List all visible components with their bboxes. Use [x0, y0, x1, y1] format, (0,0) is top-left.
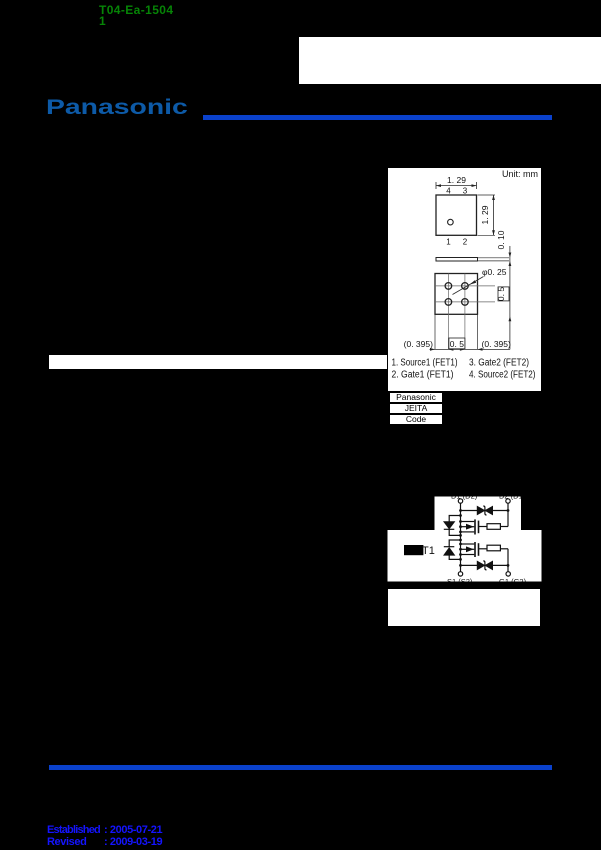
svg-text:φ0. 25: φ0. 25 [482, 267, 507, 277]
svg-text:S1 (S2): S1 (S2) [447, 577, 473, 582]
svg-text:4: 4 [446, 187, 451, 196]
svg-text:2: 2 [463, 238, 468, 247]
svg-text:0. 5: 0. 5 [450, 339, 464, 349]
svg-text:D2 (D1): D2 (D1) [499, 496, 526, 501]
svg-text:T1: T1 [422, 545, 435, 557]
svg-text:1: 1 [446, 238, 451, 247]
svg-text:Unit: mm: Unit: mm [502, 169, 538, 179]
svg-text:1. Source1 (FET1): 1. Source1 (FET1) [392, 358, 458, 369]
svg-text:4. Source2 (FET2): 4. Source2 (FET2) [469, 370, 536, 381]
svg-text:(0. 395): (0. 395) [482, 339, 511, 349]
svg-text:0. 10: 0. 10 [496, 230, 506, 249]
svg-text:1. 29: 1. 29 [480, 205, 490, 224]
svg-text:1. 29: 1. 29 [447, 175, 466, 185]
svg-text:0. 5: 0. 5 [496, 287, 506, 301]
svg-text:G1 (G2): G1 (G2) [499, 577, 527, 582]
svg-text:D1 (D2): D1 (D2) [451, 496, 478, 501]
svg-text:2. Gate1 (FET1): 2. Gate1 (FET1) [392, 370, 454, 381]
svg-text:(0. 395): (0. 395) [404, 339, 433, 349]
svg-text:3. Gate2 (FET2): 3. Gate2 (FET2) [469, 358, 529, 369]
svg-text:3: 3 [463, 187, 468, 196]
